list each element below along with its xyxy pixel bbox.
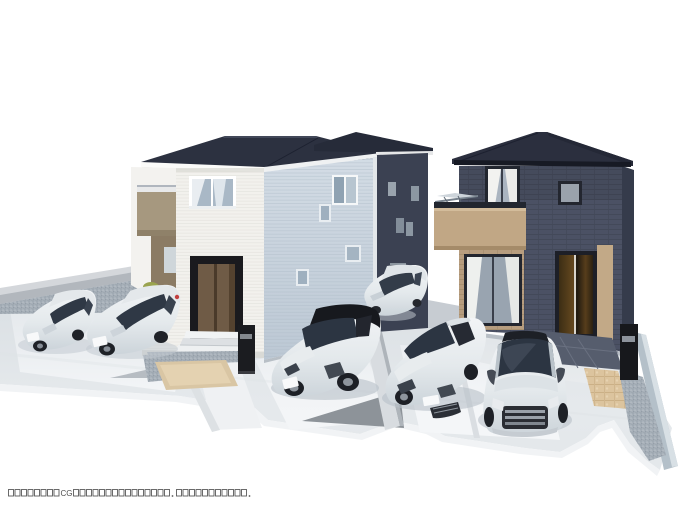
svg-text:CG: CG — [61, 489, 73, 498]
